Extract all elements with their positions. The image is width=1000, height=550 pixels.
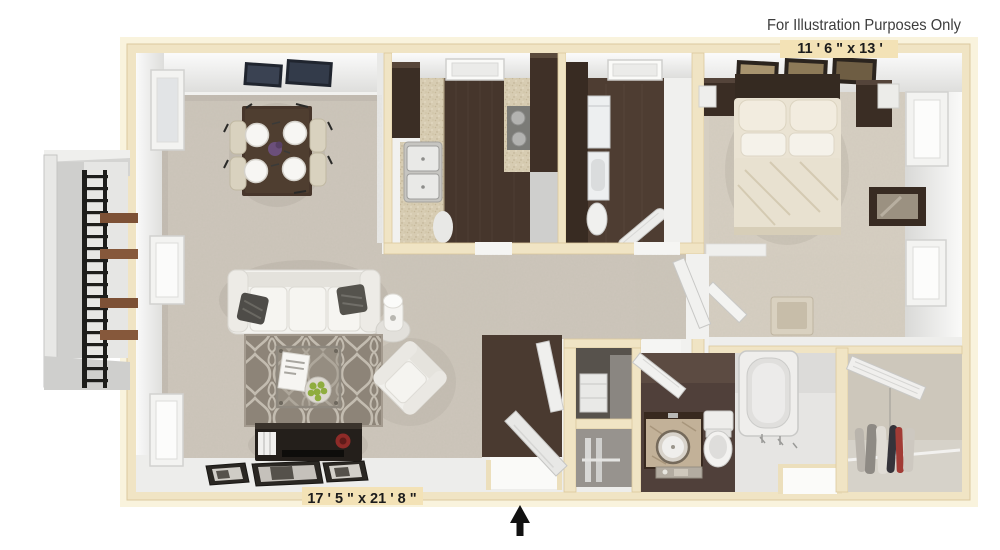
- svg-text:17 ' 5 " x 21 ' 8 ": 17 ' 5 " x 21 ' 8 ": [307, 491, 416, 507]
- svg-text:11 ' 6 " x 13 ': 11 ' 6 " x 13 ': [797, 41, 883, 57]
- svg-text:For Illustration Purposes Only: For Illustration Purposes Only: [767, 17, 961, 34]
